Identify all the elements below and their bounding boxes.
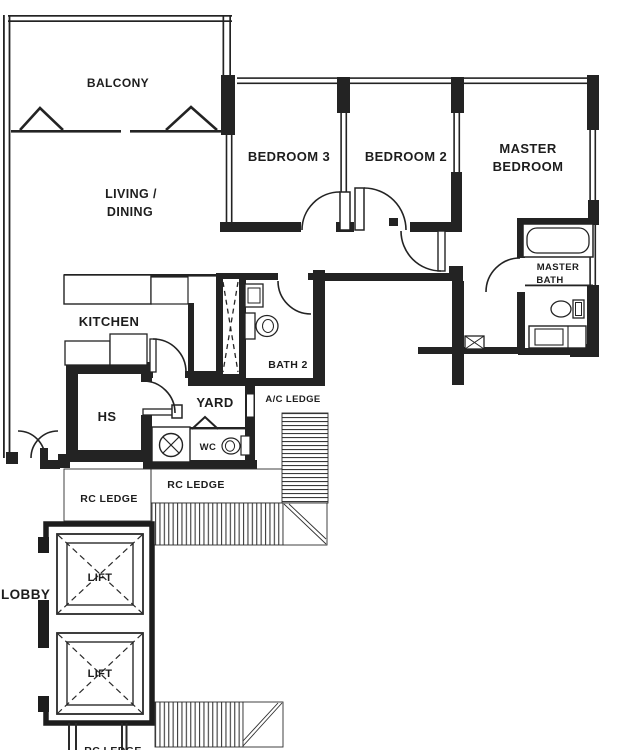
label-master-bath-1: MASTER (537, 262, 580, 273)
label-bedroom2: BEDROOM 2 (365, 149, 447, 164)
kitchen-counter-top (64, 275, 151, 304)
kitchen-door-leaf (150, 339, 156, 372)
label-living-1: LIVING / (105, 187, 157, 201)
hs-door-handle (172, 405, 182, 418)
balcony-slider-chevron-left (20, 108, 63, 130)
label-bath2: BATH 2 (268, 359, 308, 371)
bedroom2-door-leaf (355, 188, 364, 230)
bedroom3-door-leaf (340, 192, 350, 230)
kitchen-counter-lower-right (110, 334, 147, 365)
label-hs: HS (98, 409, 117, 424)
yard-vent-inset (247, 394, 255, 417)
label-kitchen: KITCHEN (79, 314, 140, 329)
label-bedroom3: BEDROOM 3 (248, 149, 330, 164)
stair-band-top (152, 503, 283, 545)
master-door-arc (401, 231, 441, 271)
label-rc-ledge-left: RC LEDGE (80, 493, 137, 505)
bath2-door-arc (278, 281, 311, 314)
kitchen-counter-lower-left (65, 341, 110, 365)
bath2-toilet-seat (263, 320, 274, 333)
lift2-opening (42, 648, 50, 696)
master-vanity-basin (535, 329, 563, 345)
label-rc-ledge-bottom-partial: RC LEDGE (84, 745, 141, 750)
ac-ledge-hatch (282, 413, 328, 503)
lift-shaft-outer (46, 524, 152, 723)
shaft-cross (223, 282, 238, 372)
label-living-2: DINING (107, 205, 153, 219)
bath2-sink-basin (248, 288, 260, 303)
lift-block (38, 524, 152, 750)
wc-toilet-tank (241, 436, 250, 455)
label-master-bedroom-1: MASTER (499, 141, 557, 156)
label-ac-ledge: A/C LEDGE (265, 394, 320, 405)
kitchen-door-arc (153, 339, 186, 372)
label-master-bedroom-2: BEDROOM (493, 159, 564, 174)
label-master-bath-2: BATH (536, 275, 563, 286)
master-bath-door-arc (486, 258, 520, 292)
balcony-slider-chevron-right (166, 107, 217, 130)
label-wc: WC (200, 442, 217, 453)
label-yard: YARD (196, 395, 233, 410)
master-toilet-tank-lid (576, 303, 582, 316)
label-lift-1: LIFT (88, 572, 113, 584)
label-rc-ledge-right: RC LEDGE (167, 479, 224, 491)
label-lobby: LOBBY (1, 587, 50, 602)
kitchen-counter-corner (151, 277, 188, 304)
floor-plan-drawing: BALCONY LIVING / DINING BEDROOM 3 BEDROO… (0, 0, 620, 750)
master-bathtub-basin (527, 228, 589, 253)
bedroom3-door-arc (302, 192, 340, 230)
master-door-leaf (438, 231, 445, 271)
hs-door-arc (143, 381, 175, 413)
bedroom2-door-arc (364, 188, 406, 230)
master-toilet-bowl (551, 301, 571, 317)
bath2-toilet-tank (245, 313, 255, 339)
floor-plan: BALCONY LIVING / DINING BEDROOM 3 BEDROO… (0, 0, 620, 750)
stair-band-bottom (155, 702, 243, 747)
wc-toilet-seat (225, 441, 234, 451)
label-lift-2: LIFT (88, 668, 113, 680)
hs-door-leaf (143, 409, 173, 415)
label-balcony: BALCONY (87, 76, 149, 90)
